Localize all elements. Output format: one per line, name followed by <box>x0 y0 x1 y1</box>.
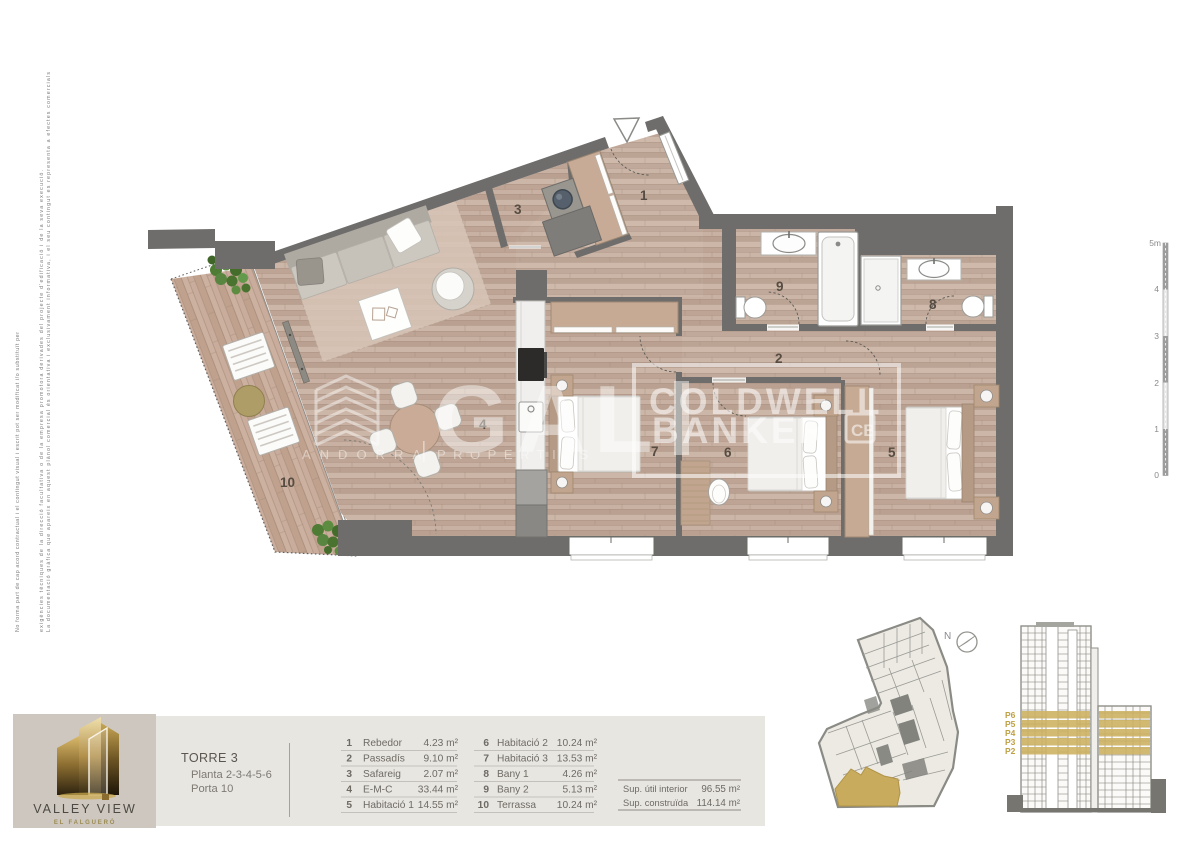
svg-text:4.23 m²: 4.23 m² <box>423 738 458 749</box>
svg-text:Planta 2-3-4-5-6: Planta 2-3-4-5-6 <box>191 769 272 781</box>
svg-text:4: 4 <box>1154 284 1159 294</box>
svg-text:2.07 m²: 2.07 m² <box>423 769 458 780</box>
svg-text:CB: CB <box>851 421 876 440</box>
svg-text:Bany 2: Bany 2 <box>497 785 529 796</box>
svg-text:Safareig: Safareig <box>363 769 401 780</box>
svg-text:96.55 m²: 96.55 m² <box>701 784 740 795</box>
svg-text:8: 8 <box>483 769 489 780</box>
svg-text:Sup. útil interior: Sup. útil interior <box>623 784 688 794</box>
svg-text:10: 10 <box>478 800 490 811</box>
svg-text:1: 1 <box>1154 424 1159 434</box>
svg-text:13.53 m²: 13.53 m² <box>557 754 598 765</box>
svg-text:exigències tècniques de la dir: exigències tècniques de la direcció facu… <box>39 170 45 632</box>
svg-text:P2: P2 <box>1005 746 1016 756</box>
svg-text:E-M-C: E-M-C <box>363 785 392 796</box>
svg-text:3: 3 <box>346 769 352 780</box>
svg-text:Rebedor: Rebedor <box>363 738 403 749</box>
svg-text:N: N <box>944 631 951 642</box>
svg-text:No forma part de cap acord con: No forma part de cap acord contractual i… <box>15 332 21 632</box>
svg-text:1: 1 <box>346 738 352 749</box>
svg-text:EL FALGUERÓ: EL FALGUERÓ <box>54 818 116 826</box>
svg-text:114.14 m²: 114.14 m² <box>697 798 741 809</box>
svg-text:2: 2 <box>346 754 352 765</box>
svg-text:9.10 m²: 9.10 m² <box>423 754 458 765</box>
svg-text:10.24 m²: 10.24 m² <box>557 800 598 811</box>
svg-text:5m: 5m <box>1149 238 1161 248</box>
svg-text:10.24 m²: 10.24 m² <box>557 738 598 749</box>
svg-text:Terrassa: Terrassa <box>497 800 536 811</box>
svg-text:8: 8 <box>929 297 937 312</box>
svg-text:Bany 1: Bany 1 <box>497 769 529 780</box>
svg-text:Habitació 2: Habitació 2 <box>497 738 548 749</box>
svg-text:7: 7 <box>483 754 489 765</box>
svg-text:Habitació 1: Habitació 1 <box>363 800 414 811</box>
svg-text:TORRE 3: TORRE 3 <box>181 751 238 765</box>
svg-text:La documentació gràfica que ap: La documentació gràfica que apareix en a… <box>46 72 52 632</box>
svg-text:0: 0 <box>1154 470 1159 480</box>
svg-text:10: 10 <box>280 475 295 490</box>
svg-text:33.44 m²: 33.44 m² <box>418 785 459 796</box>
svg-text:Sup. construïda: Sup. construïda <box>623 798 689 808</box>
svg-text:Porta 10: Porta 10 <box>191 783 233 795</box>
svg-text:Habitació 3: Habitació 3 <box>497 754 548 765</box>
svg-text:1: 1 <box>640 188 648 203</box>
svg-text:4.26 m²: 4.26 m² <box>562 769 597 780</box>
svg-text:BANKER: BANKER <box>652 410 828 451</box>
svg-text:5: 5 <box>888 445 896 460</box>
svg-text:4: 4 <box>346 785 352 796</box>
svg-text:6: 6 <box>483 738 489 749</box>
svg-text:9: 9 <box>483 785 489 796</box>
svg-text:VALLEY VIEW: VALLEY VIEW <box>33 802 137 816</box>
svg-text:3: 3 <box>1154 331 1159 341</box>
svg-text:2: 2 <box>1154 378 1159 388</box>
svg-text:5: 5 <box>346 800 352 811</box>
svg-text:5.13 m²: 5.13 m² <box>562 785 597 796</box>
svg-text:PROPERTIES: PROPERTIES <box>437 447 596 462</box>
svg-text:14.55 m²: 14.55 m² <box>418 800 459 811</box>
svg-text:9: 9 <box>776 279 784 294</box>
svg-text:Passadís: Passadís <box>363 754 405 765</box>
svg-text:3: 3 <box>514 202 522 217</box>
svg-text:ANDORRA: ANDORRA <box>302 447 430 462</box>
